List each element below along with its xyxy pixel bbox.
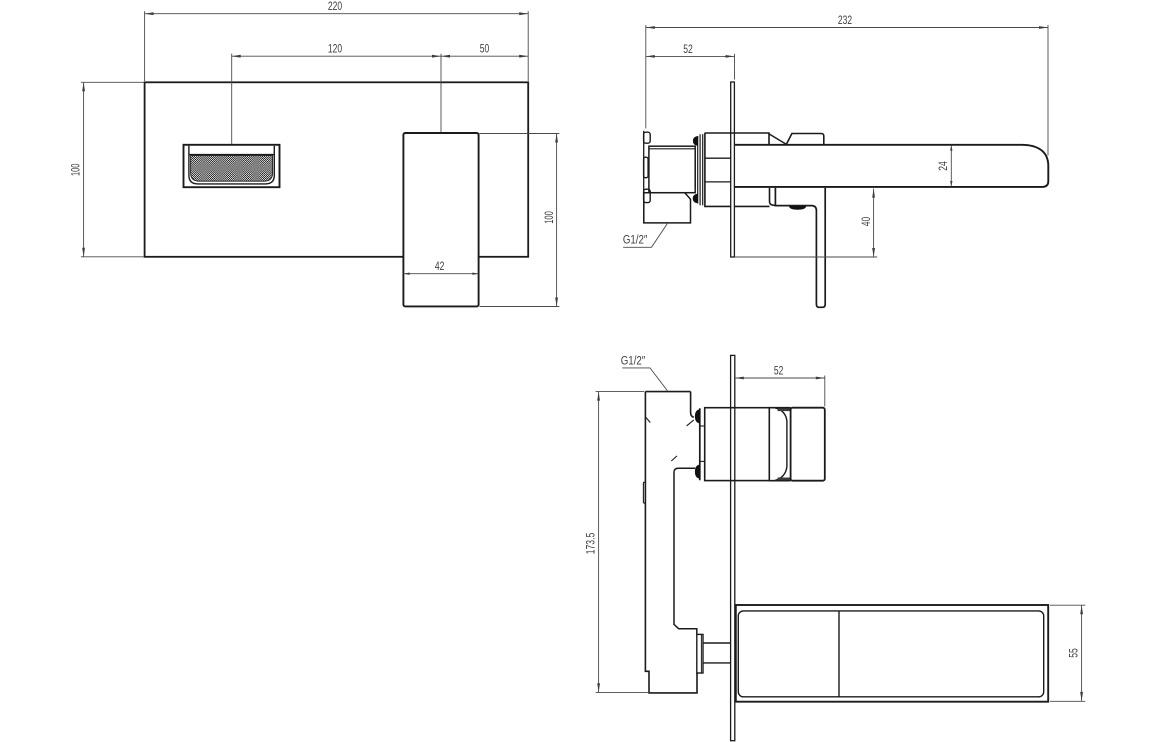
svg-text:50: 50 [480, 43, 490, 55]
svg-text:173.5: 173.5 [586, 533, 598, 555]
svg-text:24: 24 [938, 161, 950, 171]
svg-text:G1/2″: G1/2″ [621, 356, 646, 368]
svg-text:120: 120 [328, 43, 342, 55]
svg-text:40: 40 [861, 217, 873, 227]
svg-text:100: 100 [71, 164, 83, 177]
svg-text:52: 52 [774, 366, 784, 378]
svg-text:100: 100 [544, 211, 556, 224]
svg-text:G1/2″: G1/2″ [623, 235, 648, 247]
svg-text:55: 55 [1069, 648, 1081, 658]
svg-text:52: 52 [683, 44, 693, 56]
svg-text:220: 220 [328, 1, 342, 13]
svg-text:42: 42 [435, 261, 445, 273]
svg-text:232: 232 [838, 15, 852, 27]
